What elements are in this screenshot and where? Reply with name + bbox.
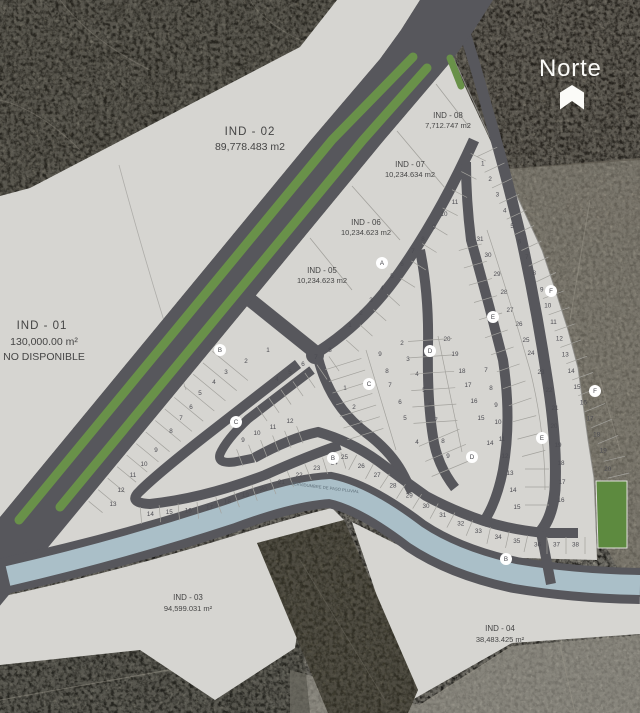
svg-text:5: 5 [390,273,394,280]
svg-text:11: 11 [130,472,137,479]
svg-text:21: 21 [551,405,559,412]
svg-text:130,000.00 m²: 130,000.00 m² [10,336,78,348]
svg-text:25: 25 [341,454,349,461]
svg-text:6: 6 [301,361,305,368]
svg-text:B: B [331,455,335,462]
svg-text:9: 9 [378,351,382,358]
svg-text:4: 4 [275,376,279,383]
svg-text:6: 6 [518,239,522,246]
svg-text:7: 7 [525,254,529,261]
svg-text:7: 7 [484,367,488,374]
svg-text:17: 17 [558,479,566,486]
svg-text:29: 29 [406,493,414,500]
svg-text:35: 35 [513,538,521,545]
svg-text:17: 17 [464,382,472,389]
svg-text:F: F [593,388,597,395]
svg-text:24: 24 [527,350,535,357]
svg-text:15: 15 [573,384,581,391]
svg-text:30: 30 [422,503,430,510]
svg-text:22: 22 [545,387,553,394]
svg-text:34: 34 [495,534,503,541]
svg-text:13: 13 [109,501,117,508]
svg-text:2: 2 [400,340,404,347]
svg-text:14: 14 [509,487,517,494]
svg-text:6: 6 [398,399,402,406]
svg-text:IND - 04: IND - 04 [485,624,515,633]
svg-text:D: D [428,348,433,355]
svg-text:13: 13 [562,352,570,359]
svg-text:D: D [470,454,475,461]
svg-text:9: 9 [432,224,436,231]
svg-text:30: 30 [484,252,492,259]
svg-text:11: 11 [499,436,506,443]
svg-text:15: 15 [513,504,521,511]
svg-text:7: 7 [314,354,318,361]
svg-text:10: 10 [494,419,502,426]
svg-text:NO DISPONIBLE: NO DISPONIBLE [3,351,85,363]
svg-text:E: E [491,314,495,321]
svg-text:7: 7 [411,248,415,255]
svg-text:IND - 07: IND - 07 [395,160,425,169]
svg-text:21: 21 [278,479,286,486]
svg-text:5: 5 [422,387,426,394]
svg-text:26: 26 [358,463,366,470]
svg-text:5: 5 [198,390,202,397]
svg-text:5: 5 [288,369,292,376]
svg-text:10: 10 [544,303,552,310]
svg-text:8: 8 [489,385,493,392]
svg-text:11: 11 [550,319,557,326]
svg-text:22: 22 [296,472,304,479]
svg-text:2: 2 [244,358,248,365]
svg-text:C: C [367,381,372,388]
svg-text:6: 6 [189,404,193,411]
svg-text:8: 8 [532,270,536,277]
svg-text:13: 13 [506,470,514,477]
svg-text:89,778.483 m2: 89,778.483 m2 [215,141,285,153]
svg-text:IND - 06: IND - 06 [351,218,381,227]
svg-text:4: 4 [415,439,419,446]
svg-text:2: 2 [352,404,356,411]
svg-text:38: 38 [572,542,580,549]
svg-text:B: B [504,556,508,563]
svg-text:1: 1 [266,347,270,354]
svg-text:27: 27 [374,472,382,479]
svg-text:10: 10 [140,461,148,468]
svg-text:4: 4 [380,285,384,292]
svg-text:17: 17 [586,416,594,423]
svg-text:12: 12 [556,335,564,342]
svg-text:19: 19 [451,351,459,358]
svg-text:IND - 08: IND - 08 [433,111,463,120]
svg-text:20: 20 [604,466,612,473]
svg-text:1: 1 [348,322,352,329]
svg-text:1: 1 [481,160,485,167]
svg-text:3: 3 [369,297,373,304]
svg-text:7: 7 [434,417,438,424]
svg-text:94,599.031 m²: 94,599.031 m² [164,604,213,613]
svg-text:29: 29 [493,271,501,278]
svg-text:23: 23 [313,465,321,472]
svg-text:4: 4 [503,207,507,214]
svg-text:18: 18 [224,498,232,505]
svg-text:19: 19 [242,492,250,499]
svg-text:IND - 02: IND - 02 [225,126,276,138]
svg-text:8: 8 [328,347,332,354]
svg-text:F: F [549,288,553,295]
svg-text:17: 17 [206,505,214,512]
svg-text:12: 12 [501,453,509,460]
svg-text:12: 12 [117,487,125,494]
svg-text:31: 31 [439,512,447,519]
svg-text:7: 7 [388,382,392,389]
svg-text:5: 5 [510,223,514,230]
svg-text:9: 9 [494,402,498,409]
svg-text:11: 11 [452,199,459,206]
svg-text:20: 20 [443,336,451,343]
svg-text:18: 18 [458,368,466,375]
svg-text:IND - 03: IND - 03 [173,593,203,602]
svg-text:15: 15 [477,415,485,422]
svg-text:14: 14 [568,368,576,375]
svg-text:10,234.634 m2: 10,234.634 m2 [385,170,435,179]
svg-text:16: 16 [557,497,565,504]
svg-text:16: 16 [470,398,478,405]
svg-text:8: 8 [421,236,425,243]
svg-text:20: 20 [260,486,268,493]
svg-text:19: 19 [554,442,562,449]
svg-text:10: 10 [253,430,261,437]
svg-text:9: 9 [241,437,245,444]
svg-text:3: 3 [406,356,410,363]
svg-text:C: C [234,419,239,426]
svg-text:19: 19 [600,448,608,455]
svg-text:2: 2 [359,310,363,317]
svg-text:7: 7 [179,415,183,422]
svg-text:B: B [218,347,222,354]
svg-text:7,712.747 m2: 7,712.747 m2 [425,121,471,130]
svg-text:37: 37 [553,542,561,549]
svg-text:3: 3 [224,369,228,376]
svg-text:36: 36 [534,542,542,549]
svg-text:4: 4 [415,371,419,378]
svg-text:Norte: Norte [539,55,602,82]
svg-text:IND - 05: IND - 05 [307,266,337,275]
svg-text:14: 14 [486,440,494,447]
svg-text:31: 31 [476,236,484,243]
svg-text:10,234.623 m2: 10,234.623 m2 [297,276,347,285]
svg-text:16: 16 [580,400,588,407]
svg-text:10,234.623 m2: 10,234.623 m2 [341,228,391,237]
svg-text:20: 20 [550,423,558,430]
svg-text:9: 9 [154,447,158,454]
svg-text:32: 32 [457,521,465,528]
svg-text:14: 14 [147,511,155,518]
svg-text:5: 5 [403,415,407,422]
svg-text:6: 6 [400,261,404,268]
svg-text:25: 25 [522,337,530,344]
svg-text:23: 23 [537,369,545,376]
svg-text:33: 33 [475,528,483,535]
svg-text:11: 11 [270,424,277,431]
svg-text:9: 9 [446,453,450,460]
svg-text:28: 28 [389,482,397,489]
svg-text:8: 8 [385,368,389,375]
svg-text:9: 9 [540,286,544,293]
svg-text:18: 18 [557,460,565,467]
svg-text:8: 8 [441,438,445,445]
svg-text:38,483.425 m²: 38,483.425 m² [476,635,525,644]
svg-text:10: 10 [440,211,448,218]
svg-text:16: 16 [185,507,193,514]
svg-text:15: 15 [166,509,174,516]
svg-text:3: 3 [496,192,500,199]
svg-text:3: 3 [359,420,363,427]
svg-text:4: 4 [212,379,216,386]
svg-text:2: 2 [488,176,492,183]
svg-text:18: 18 [593,432,601,439]
svg-text:8: 8 [169,428,173,435]
svg-text:E: E [540,435,544,442]
svg-text:IND - 01: IND - 01 [17,320,68,332]
svg-text:12: 12 [286,418,294,425]
